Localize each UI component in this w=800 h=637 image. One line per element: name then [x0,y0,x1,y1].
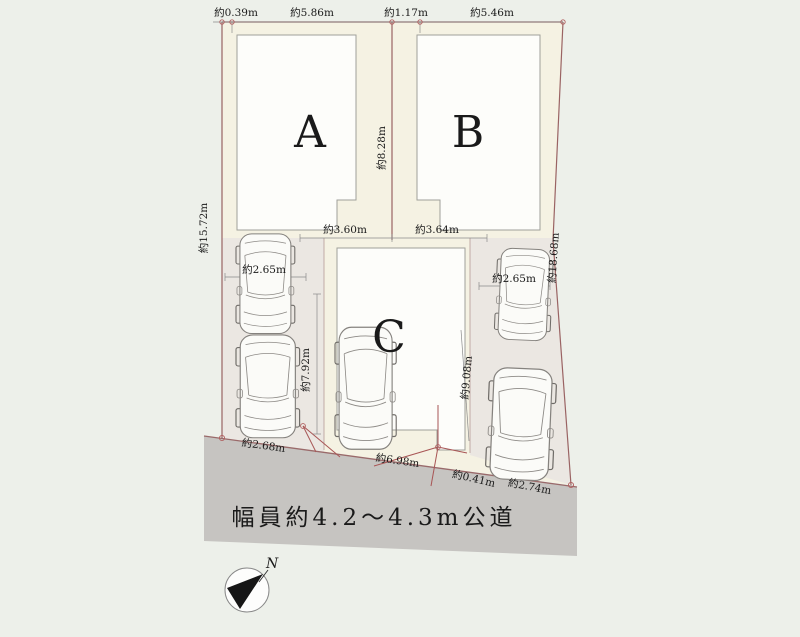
north-label: N [265,556,279,572]
car-top-view-left-1 [236,234,295,334]
site-plan-drawing: 約0.39m 約5.86m 約1.17m 約5.46m 約15.72m 約8.2… [0,0,800,637]
dim-left-side-label: 約15.72m [197,203,210,254]
dim-top-b-label: 約5.46m [470,6,514,19]
road-width-label: 幅員約4.2～4.3m公道 [232,505,517,531]
dim-right-parking-label: 約2.65m [492,272,536,285]
dim-c-left-depth-label: 約7.92m [299,348,312,392]
lot-c-label: C [372,312,406,363]
dim-top-a-label: 約5.86m [290,6,334,19]
dim-top-left-label: 約0.39m [214,6,258,19]
car-top-view-left-2 [236,335,300,438]
dim-center-divider-label: 約8.28m [375,126,388,170]
dim-a-frontage-label: 約3.60m [323,223,367,236]
dim-b-frontage-label: 約3.64m [415,223,459,236]
dim-top-gap-label: 約1.17m [384,6,428,19]
dim-left-parking-label: 約2.65m [242,263,286,276]
car-top-view-right-1 [494,248,554,342]
lot-a-label: A [293,107,327,158]
car-top-view-right-2 [485,367,557,481]
site-plan-page: 約0.39m 約5.86m 約1.17m 約5.46m 約15.72m 約8.2… [0,0,800,637]
lot-b-label: B [452,107,484,158]
